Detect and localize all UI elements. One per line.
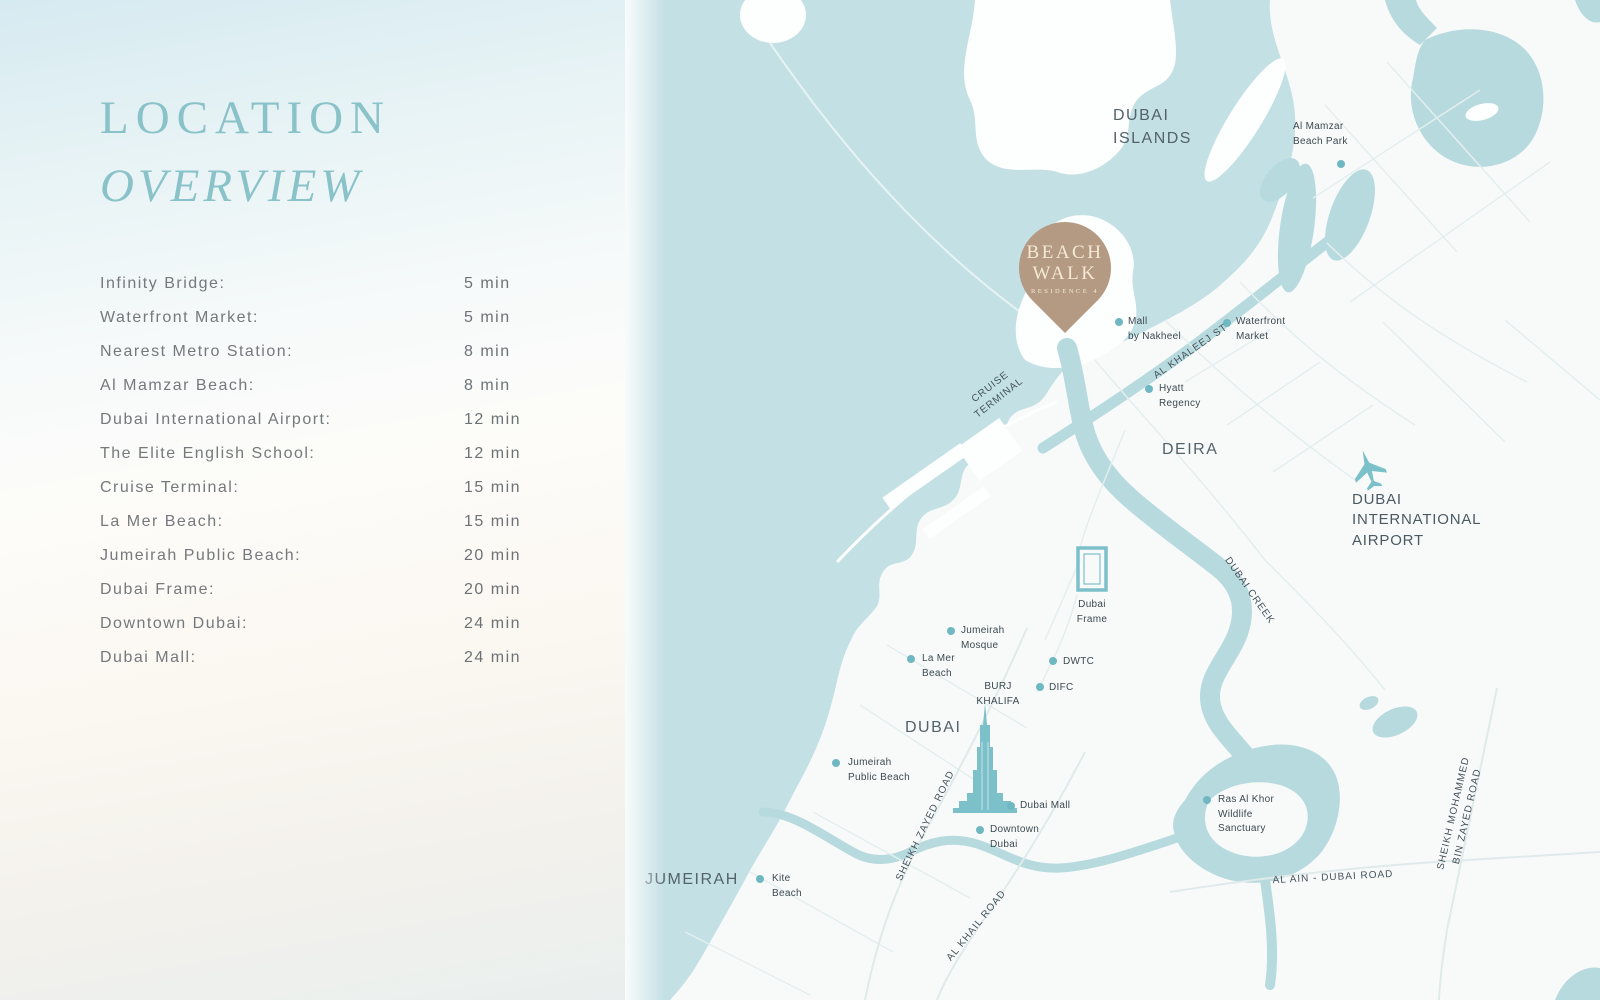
dubai-map: BEACH WALK RESIDENCE 4 DUBAI ISLANDS DEI… <box>625 0 1600 1000</box>
distance-row: Jumeirah Public Beach:20 min <box>100 539 560 573</box>
travel-time: 20 min <box>464 547 521 565</box>
area-label-jumeirah: JUMEIRAH <box>645 868 739 891</box>
place-label: Jumeirah Public Beach: <box>100 547 301 565</box>
hyatt-regency-label: Hyatt Regency <box>1159 382 1201 411</box>
location-panel: LOCATION OVERVIEW Infinity Bridge:5 min … <box>0 0 625 1000</box>
burj-khalifa-label: BURJ KHALIFA <box>965 680 1031 709</box>
downtown-dubai-dot <box>976 826 984 834</box>
page-title: LOCATION OVERVIEW <box>100 84 391 220</box>
distance-row: The Elite English School:12 min <box>100 437 560 471</box>
mall-by-nakheel-dot <box>1115 318 1123 326</box>
jumeirah-public-beach-dot <box>832 759 840 767</box>
travel-time: 24 min <box>464 615 521 633</box>
la-mer-beach-dot <box>907 655 915 663</box>
mall-by-nakheel-label: Mall by Nakheel <box>1128 315 1181 344</box>
distance-list: Infinity Bridge:5 min Waterfront Market:… <box>100 267 560 675</box>
place-label: Al Mamzar Beach: <box>100 377 255 395</box>
place-label: Cruise Terminal: <box>100 479 239 497</box>
pin-brand-line2: WALK <box>1033 263 1098 284</box>
al-mamzar-dot <box>1337 160 1345 168</box>
travel-time: 12 min <box>464 411 521 429</box>
travel-time: 24 min <box>464 649 521 667</box>
place-label: The Elite English School: <box>100 445 315 463</box>
pin-brand-subtitle: RESIDENCE 4 <box>1031 288 1099 295</box>
travel-time: 15 min <box>464 479 521 497</box>
waterfront-market-label: Waterfront Market <box>1236 315 1285 344</box>
kite-beach-dot <box>756 875 764 883</box>
distance-row: Waterfront Market:5 min <box>100 301 560 335</box>
ras-al-khor-dot <box>1203 796 1211 804</box>
jumeirah-public-beach-label: Jumeirah Public Beach <box>848 756 910 785</box>
beach-walk-pin-label: BEACH WALK RESIDENCE 4 <box>1019 224 1111 312</box>
la-mer-beach-label: La Mer Beach <box>922 652 955 681</box>
jumeirah-mosque-label: Jumeirah Mosque <box>961 624 1005 653</box>
dubai-frame-label: Dubai Frame <box>1073 598 1111 627</box>
place-label: Infinity Bridge: <box>100 275 225 293</box>
difc-label: DIFC <box>1049 681 1074 696</box>
dwtc-label: DWTC <box>1063 655 1094 670</box>
distance-row: Dubai Mall:24 min <box>100 641 560 675</box>
downtown-dubai-label: Downtown Dubai <box>990 823 1039 852</box>
distance-row: Downtown Dubai:24 min <box>100 607 560 641</box>
kite-beach-label: Kite Beach <box>772 872 802 901</box>
travel-time: 8 min <box>464 343 511 361</box>
dubai-mall-label: Dubai Mall <box>1020 799 1070 814</box>
place-label: Dubai International Airport: <box>100 411 331 429</box>
travel-time: 15 min <box>464 513 521 531</box>
place-label: Downtown Dubai: <box>100 615 248 633</box>
distance-row: La Mer Beach:15 min <box>100 505 560 539</box>
jumeirah-mosque-dot <box>947 627 955 635</box>
place-label: La Mer Beach: <box>100 513 224 531</box>
place-label: Waterfront Market: <box>100 309 259 327</box>
place-label: Dubai Mall: <box>100 649 197 667</box>
travel-time: 5 min <box>464 275 511 293</box>
travel-time: 5 min <box>464 309 511 327</box>
travel-time: 20 min <box>464 581 521 599</box>
distance-row: Dubai Frame:20 min <box>100 573 560 607</box>
page-title-line1: LOCATION <box>100 84 391 152</box>
area-label-deira: DEIRA <box>1162 438 1218 461</box>
al-mamzar-label: Al Mamzar Beach Park <box>1293 120 1348 149</box>
dwtc-dot <box>1049 657 1057 665</box>
distance-row: Dubai International Airport:12 min <box>100 403 560 437</box>
hyatt-regency-dot <box>1145 385 1153 393</box>
travel-time: 8 min <box>464 377 511 395</box>
area-label-dubai-islands: DUBAI ISLANDS <box>1113 104 1192 150</box>
distance-row: Nearest Metro Station:8 min <box>100 335 560 369</box>
distance-row: Cruise Terminal:15 min <box>100 471 560 505</box>
place-label: Nearest Metro Station: <box>100 343 293 361</box>
pin-brand-line1: BEACH <box>1027 242 1104 263</box>
page-title-line2: OVERVIEW <box>100 152 391 220</box>
location-overview-page: LOCATION OVERVIEW Infinity Bridge:5 min … <box>0 0 1600 1000</box>
place-label: Dubai Frame: <box>100 581 215 599</box>
area-label-dubai: DUBAI <box>905 716 961 739</box>
difc-dot <box>1036 683 1044 691</box>
ras-al-khor-label: Ras Al Khor Wildlife Sanctuary <box>1218 793 1274 837</box>
dubai-mall-dot <box>1007 802 1015 810</box>
distance-row: Infinity Bridge:5 min <box>100 267 560 301</box>
airport-label: DUBAI INTERNATIONAL AIRPORT <box>1352 490 1481 551</box>
travel-time: 12 min <box>464 445 521 463</box>
distance-row: Al Mamzar Beach:8 min <box>100 369 560 403</box>
